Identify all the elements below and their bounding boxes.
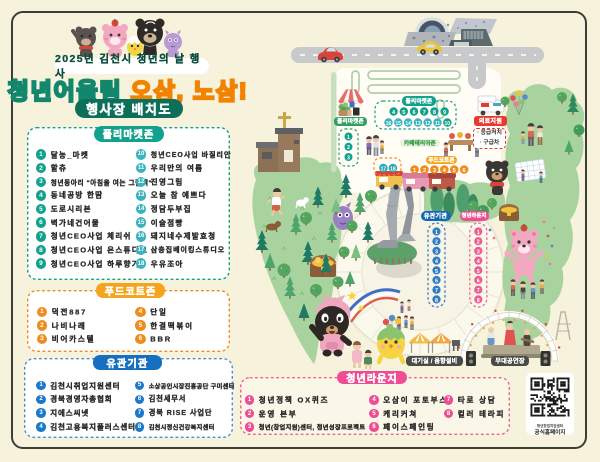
svg-text:2: 2 [477,240,480,246]
svg-text:2: 2 [423,168,426,174]
svg-text:3: 3 [435,249,438,255]
svg-text:3: 3 [477,249,480,255]
svg-text:8: 8 [477,298,480,304]
svg-text:1: 1 [347,135,350,141]
svg-text:15: 15 [396,121,402,127]
svg-text:2: 2 [347,145,350,151]
svg-text:7: 7 [477,288,480,294]
svg-text:16: 16 [386,121,392,127]
svg-text:7: 7 [423,110,426,116]
svg-text:7: 7 [435,288,438,294]
svg-text:11: 11 [435,121,441,127]
svg-text:8: 8 [435,298,438,304]
svg-text:6: 6 [477,278,480,284]
svg-text:5: 5 [435,269,438,275]
svg-text:1: 1 [435,230,438,236]
svg-text:6: 6 [412,110,415,116]
svg-text:18: 18 [390,167,396,173]
svg-text:10: 10 [445,121,451,127]
svg-text:13: 13 [415,121,421,127]
svg-text:17: 17 [381,167,387,173]
svg-text:12: 12 [425,121,431,127]
svg-text:14: 14 [405,121,411,127]
svg-text:3: 3 [433,168,436,174]
svg-text:4: 4 [477,259,480,265]
svg-text:6: 6 [435,278,438,284]
svg-text:8: 8 [433,110,436,116]
svg-text:5: 5 [453,168,456,174]
svg-text:6: 6 [463,168,466,174]
svg-text:3: 3 [347,155,350,161]
svg-text:1: 1 [413,168,416,174]
svg-text:9: 9 [443,110,446,116]
svg-text:4: 4 [435,259,438,265]
svg-text:5: 5 [402,110,405,116]
svg-text:1: 1 [477,230,480,236]
svg-text:5: 5 [477,269,480,275]
svg-text:2: 2 [435,240,438,246]
